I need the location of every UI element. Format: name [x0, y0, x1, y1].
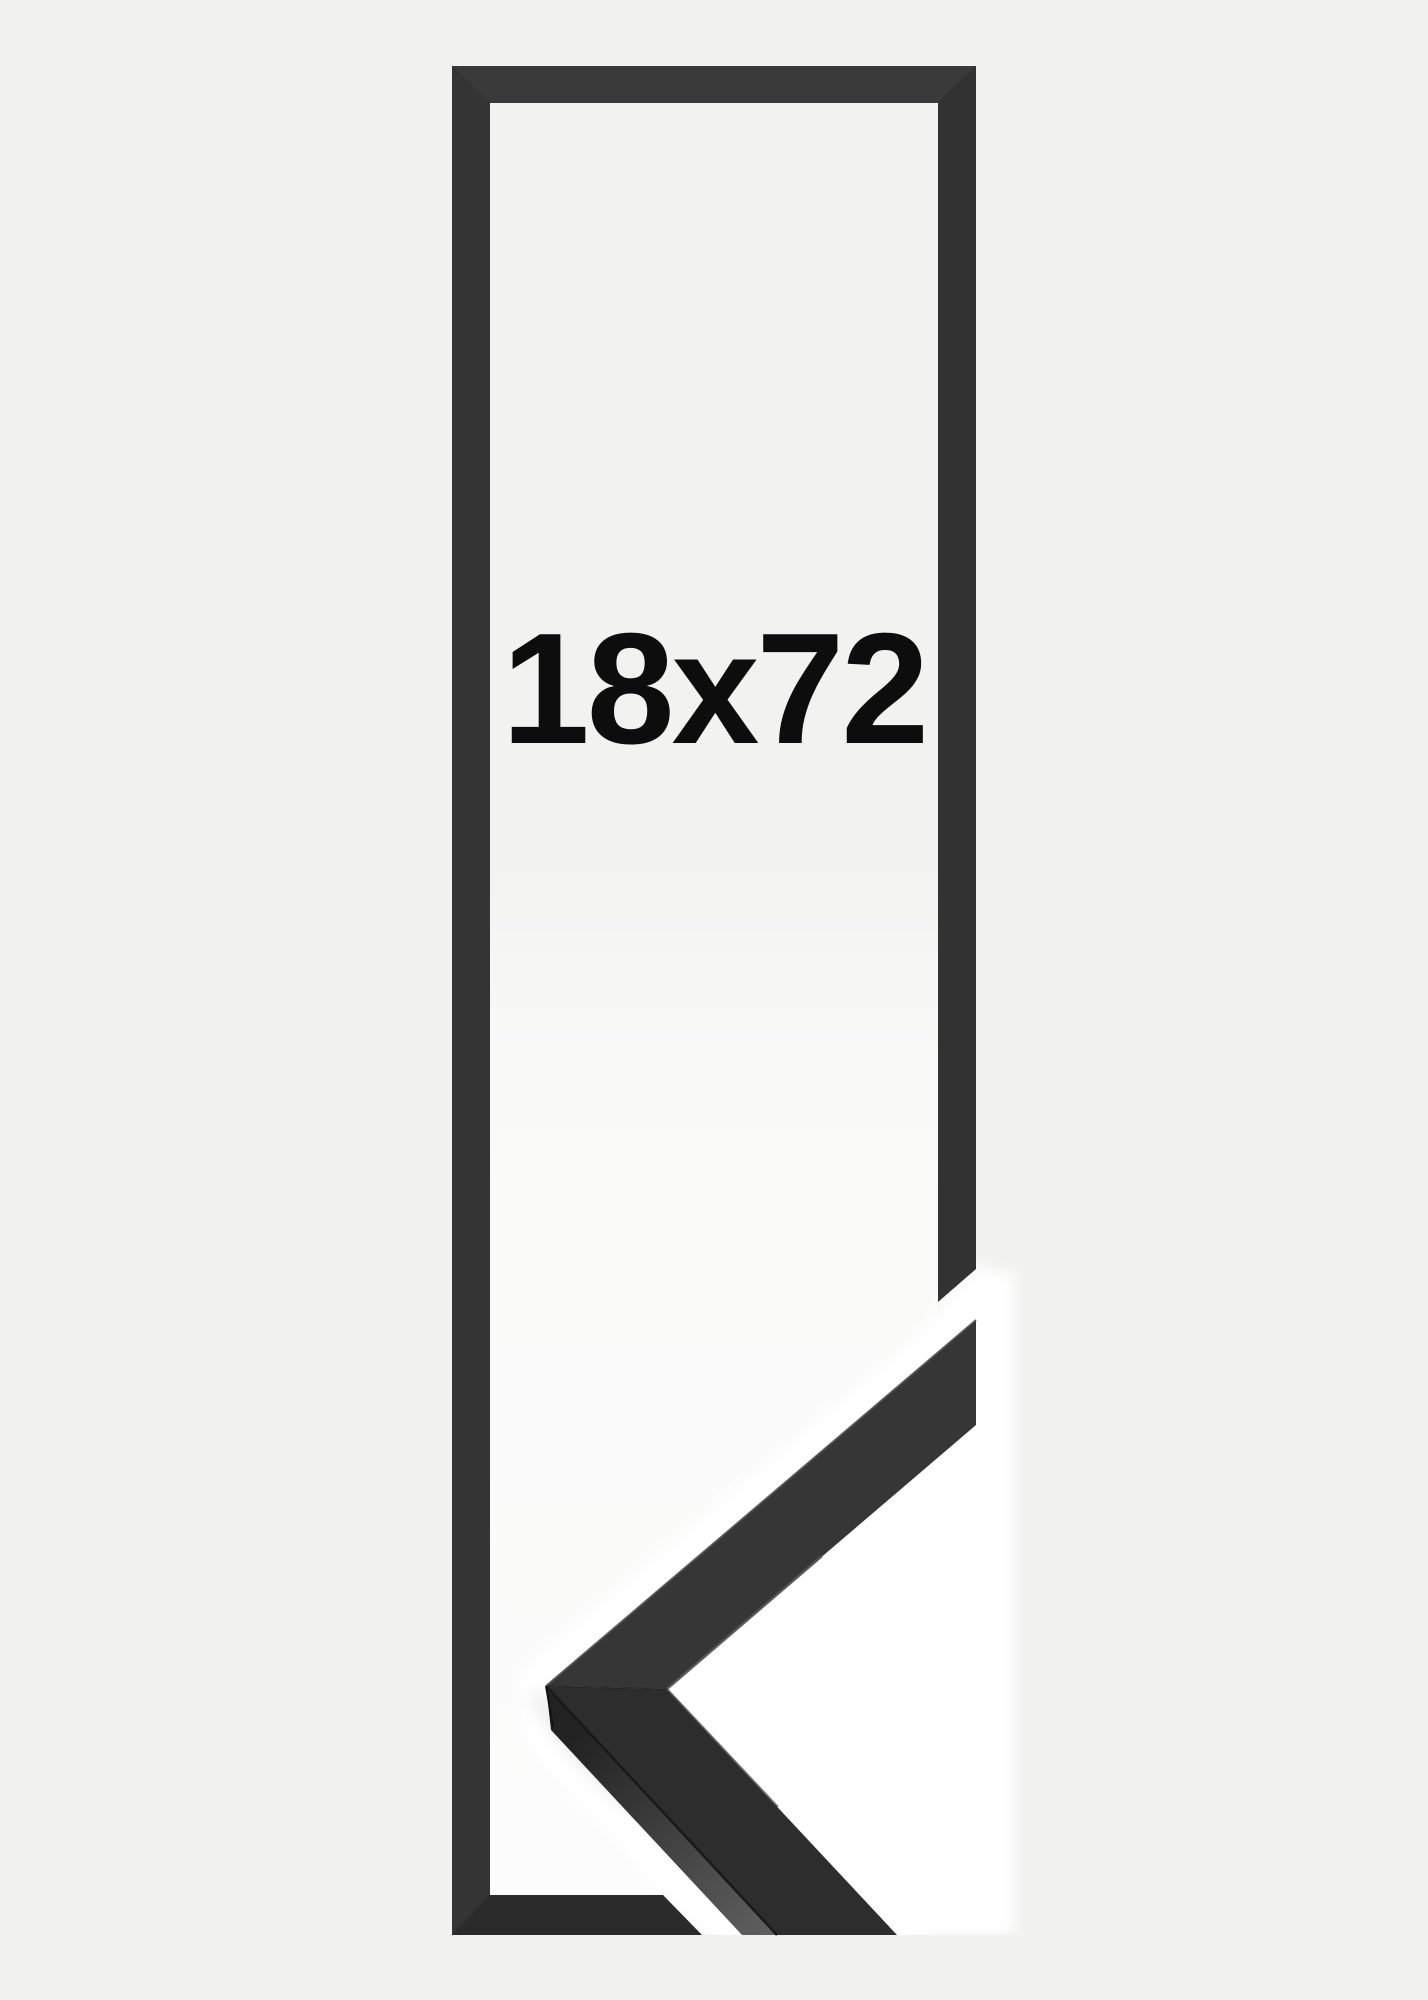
frame-illustration [0, 0, 1428, 2000]
frame-left-bar [452, 66, 490, 1935]
size-label: 18x72 [452, 610, 976, 768]
frame-product-image: 18x72 [0, 0, 1428, 2000]
frame-bottom-bar [452, 1895, 702, 1935]
frame-top-bar [452, 66, 976, 103]
